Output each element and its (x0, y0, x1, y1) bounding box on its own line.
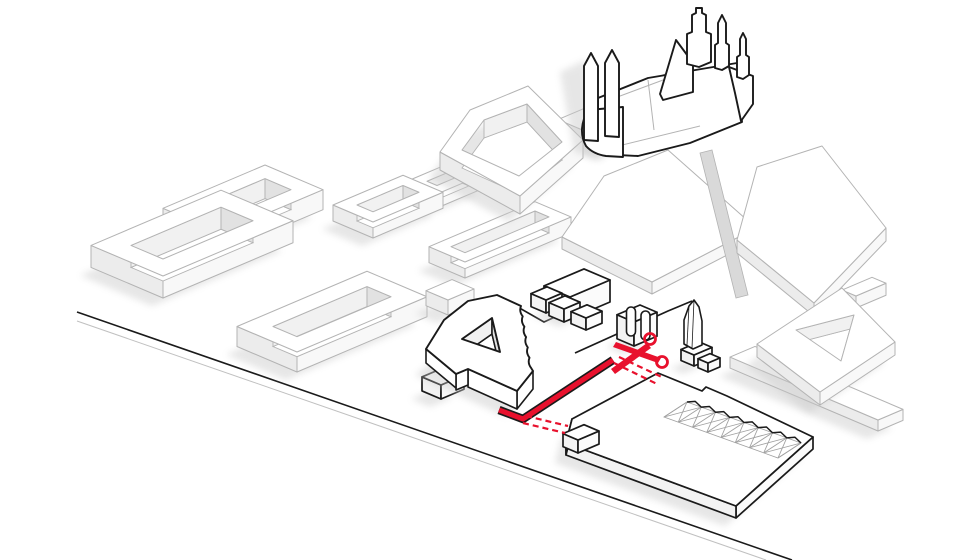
cathedral-ne-tower-1 (715, 15, 729, 70)
urban-axonometric-diagram (0, 0, 975, 560)
obelisk-monument (684, 300, 702, 349)
cathedral-central-tower (687, 8, 711, 67)
cathedral-ne-tower-2 (737, 33, 749, 79)
cathedral (560, 8, 753, 160)
courtyard-block-c (322, 175, 443, 246)
diagram-canvas (0, 0, 975, 560)
courtyard-block-b (80, 190, 293, 306)
slim-courtyard-block (418, 202, 571, 286)
cathedral-west-spire-1 (584, 53, 598, 141)
cathedral-west-spire-2 (605, 50, 619, 137)
courtyard-block-x (226, 271, 427, 380)
